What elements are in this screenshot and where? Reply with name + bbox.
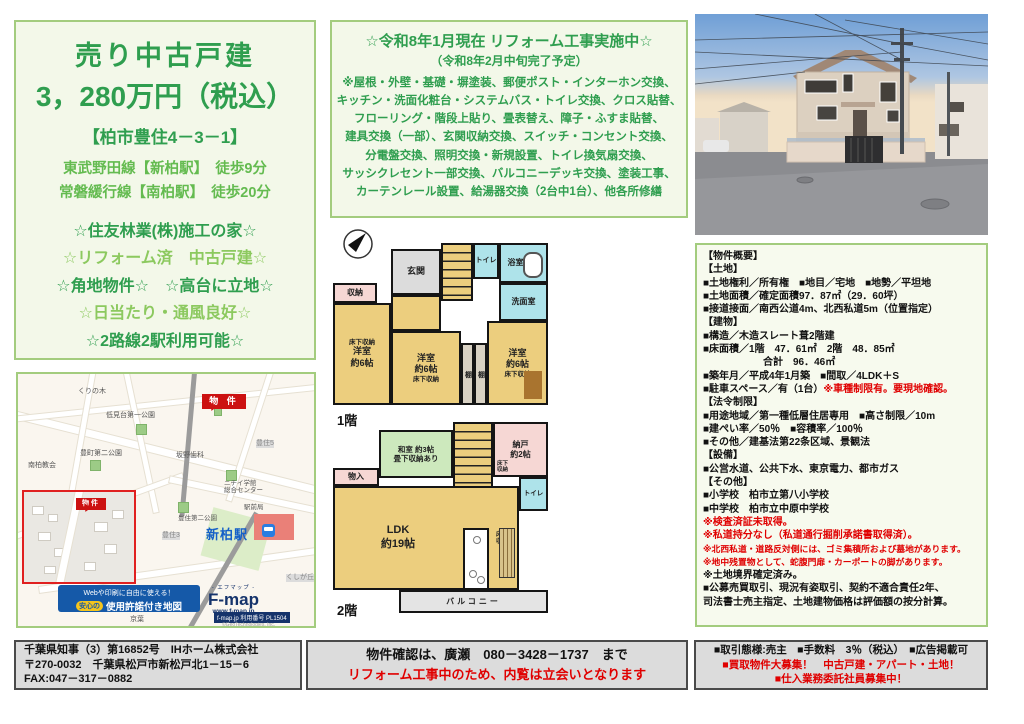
room-label: 玄関 — [407, 266, 425, 277]
map-label-kushigaoka: くしが丘 — [286, 574, 314, 582]
map-label-dental: 坂野歯科 — [176, 452, 204, 460]
license-line: 〒270-0032 千葉県松戸市新松戸北1－15－6 — [24, 658, 300, 673]
property-marker: 物 件 — [202, 394, 246, 409]
access-info: 東武野田線【新柏駅】 徒歩9分常磐緩行線【南柏駅】 徒歩20分 — [16, 158, 314, 206]
terms-line: ■買取物件大募集！ 中古戸建・アパート・土地！ — [696, 658, 986, 673]
detail-line: ※土地境界確定済み。 — [703, 569, 980, 582]
map-label-toyosumi3: 豊住3 — [162, 532, 180, 540]
room-nando: 納戸 約2帖 床下 収納 — [493, 422, 548, 477]
detail-line: ■構造／木造スレート葺2階建 — [703, 330, 980, 343]
banner-badge: 安心の — [76, 601, 103, 611]
map-label-nichii: ニチイ学館 総合センター — [224, 480, 263, 495]
detail-line: ■公営水道、公共下水、東京電力、都市ガス — [703, 463, 980, 476]
detail-line: 【その他】 — [703, 476, 980, 489]
kitchen-counter — [463, 528, 489, 590]
detail-line: 【土地】 — [703, 263, 980, 276]
detail-line: ■駐車スペース／有（1台）※車種制限有。要現地確認。 — [703, 383, 980, 396]
park-icon — [178, 502, 189, 513]
underfloor-storage-label: 床下 収納 — [497, 461, 508, 473]
map-license-banner: Webや印刷に自由に使える！ 安心の 使用許諾付き地図 — [58, 585, 200, 612]
fmap-logo: - エフマップ - F-map www.f-map.jp — [208, 583, 259, 615]
detail-line: ■接道接面／南西公道4m、北西私道5m（位置指定） — [703, 303, 980, 316]
feature-line: ☆リフォーム済 中古戸建☆ — [16, 245, 314, 273]
shelf-label: 棚 — [476, 371, 486, 378]
feature-list: ☆住友林業(株)施工の家☆☆リフォーム済 中古戸建☆☆角地物件☆ ☆高台に立地☆… — [16, 218, 314, 356]
property-photo — [695, 14, 988, 235]
park-icon — [90, 460, 101, 471]
shelf-left: 棚 — [461, 343, 474, 405]
property-marker-label: 物 件 — [209, 396, 239, 406]
renovation-line: フローリング・階段上貼り、畳表替え、障子・ふすま貼替、 — [332, 110, 686, 128]
train-station-icon — [262, 524, 275, 537]
bathtub-icon — [523, 252, 543, 278]
room-label: トイレ — [524, 490, 544, 498]
banner-line1: Webや印刷に自由に使える！ — [58, 585, 200, 598]
map-road — [16, 383, 316, 422]
room-storage-1f: 収納 — [333, 283, 377, 303]
contact-line: リフォーム工事中のため、内覧は立会いとなります — [308, 665, 686, 685]
detail-line: 【法令制限】 — [703, 396, 980, 409]
renovation-line: カーテンレール設置、給湯器交換（2台中1台）、他各所修繕 — [332, 183, 686, 201]
license-lines: 千葉県知事（3）第16852号 IHホーム株式会社〒270-0032 千葉県松戸… — [24, 643, 300, 688]
map-label-park1: 低見台第一公園 — [106, 412, 155, 420]
price: 3，280万円（税込） — [16, 75, 314, 115]
detail-line: 合計 96．46㎡ — [703, 356, 980, 369]
map-label-church: 南柏教会 — [28, 462, 56, 470]
floorplan-1f: 玄関 トイレ 浴室 洗面室 収納 床下収納 洋室 約6帖 洋室 約6帖 床下収納… — [333, 243, 548, 405]
room-label: 和室 約3帖 畳下収納あり — [394, 445, 439, 464]
map-label-keiyo: 京葉 — [130, 616, 144, 624]
fmap-name: F-map — [208, 591, 259, 608]
renovation-line: 分電盤交換、照明交換・新規設置、トイレ換気扇交換、 — [332, 147, 686, 165]
hall-1f — [391, 295, 441, 331]
property-address: 【柏市豊住4－3－1】 — [16, 123, 314, 148]
property-details-list: 【物件概要】【土地】■土地権利／所有権 ■地目／宅地 ■地勢／平坦地■土地面積／… — [703, 250, 980, 609]
access-line: 東武野田線【新柏駅】 徒歩9分 — [16, 158, 314, 182]
shelf-label: 棚 — [463, 371, 473, 378]
map-road — [16, 409, 316, 503]
floorplan-2f: 和室 約3帖 畳下収納あり 納戸 約2帖 床下 収納 物入 トイレ LDK 約1… — [333, 420, 548, 615]
room-label: 浴室 — [508, 258, 524, 268]
cabinet-icon — [524, 371, 542, 399]
terms-lines: ■取引態様:売主 ■手数料 3％（税込） ■広告掲載可■買取物件大募集！ 中古戸… — [696, 643, 986, 687]
room-label: 納戸 約2帖 — [510, 440, 530, 460]
detail-line: ■土地権利／所有権 ■地目／宅地 ■地勢／平坦地 — [703, 277, 980, 290]
room-western-right: 洋室 約6帖 床下収納 — [487, 321, 548, 405]
map-label-park2: 豊町第二公園 — [80, 450, 122, 458]
fmap-copyright: ©GeoTechnologies, Inc. — [222, 622, 275, 628]
room-label: トイレ — [476, 257, 497, 266]
renovation-line: ※屋根・外壁・基礎・塀塗装、郵便ポスト・インターホン交換、 — [332, 74, 686, 92]
room-washitsu: 和室 約3帖 畳下収納あり — [379, 430, 453, 478]
flyer-page: 売り中古戸建 3，280万円（税込） 【柏市豊住4－3－1】 東武野田線【新柏駅… — [0, 0, 1024, 724]
detail-line: 【設備】 — [703, 449, 980, 462]
map-label-station: 新柏駅 — [206, 524, 248, 543]
detail-line: ■建ぺい率／50％ ■容積率／100％ — [703, 423, 980, 436]
detail-line: ■築年月／平成4年1月築 ■間取／4LDK＋S — [703, 370, 980, 383]
park-icon — [136, 424, 147, 435]
detail-line: ■その他／建基法第22条区域、景観法 — [703, 436, 980, 449]
room-label: 洋室 約6帖 — [350, 346, 373, 369]
stairs-2f — [453, 422, 493, 488]
room-monoire: 物入 — [333, 468, 379, 486]
detail-line: ■中学校 柏市立中原中学校 — [703, 503, 980, 516]
feature-line: ☆日当たり・通風良好☆ — [16, 300, 314, 328]
terms-line: ■取引態様:売主 ■手数料 3％（税込） ■広告掲載可 — [696, 643, 986, 658]
renovation-line: 建具交換（一部）、玄関収納交換、スイッチ・コンセント交換、 — [332, 128, 686, 146]
feature-line: ☆2路線2駅利用可能☆ — [16, 328, 314, 356]
feature-line: ☆住友林業(株)施工の家☆ — [16, 218, 314, 246]
renovation-subtitle: （令和8年2月中旬完了予定） — [332, 52, 686, 69]
detail-line: ※地中残置物として、蛇腹門扉・カーポートの脚があります。 — [703, 556, 980, 569]
room-label: 洗面室 — [512, 297, 536, 307]
renovation-panel: ☆令和8年1月現在 リフォーム工事実施中☆ （令和8年2月中旬完了予定） ※屋根… — [330, 20, 688, 218]
room-label: バルコニー — [446, 597, 501, 607]
room-label: 物入 — [348, 472, 364, 482]
floor2-label: 2階 — [337, 600, 357, 619]
room-label: 収納 — [347, 288, 363, 298]
license-box: 千葉県知事（3）第16852号 IHホーム株式会社〒270-0032 千葉県松戸… — [14, 640, 302, 690]
room-toilet-1f: トイレ — [473, 243, 499, 279]
access-line: 常磐緩行線【南柏駅】 徒歩20分 — [16, 182, 314, 206]
detail-line: 【建物】 — [703, 316, 980, 329]
room-label: LDK 約19帖 — [381, 524, 415, 552]
contact-line: 物件確認は、廣瀬 080－3428－1737 まで — [308, 645, 686, 665]
banner-line2: 使用許諾付き地図 — [106, 599, 182, 613]
map-label-park3: 豊住第二公園 — [178, 515, 217, 522]
detail-line: ※検査済証未取得。 — [703, 516, 980, 529]
shelf-right: 棚 — [474, 343, 487, 405]
detail-line: ■土地面積／確定面積97．87㎡（29．60坪） — [703, 290, 980, 303]
room-label: 洋室 約6帖 — [506, 348, 529, 371]
detail-line: ※北西私道・道路反対側には、ゴミ集積所および墓地があります。 — [703, 543, 980, 556]
map-label-kurinoki: くりの木 — [78, 388, 106, 396]
stairs-1f — [441, 243, 473, 301]
room-western-center: 洋室 約6帖 床下収納 — [391, 331, 461, 405]
detail-line: ■公募売買取引、現況有姿取引、契約不適合責任2年、 — [703, 582, 980, 595]
property-marker-inset: 物件 — [76, 498, 106, 510]
room-washroom: 洗面室 — [499, 283, 548, 321]
detail-line: 司法書士売主指定、土地建物価格は評価額の按分計算。 — [703, 596, 980, 609]
property-marker-label: 物件 — [82, 500, 100, 507]
room-bath: 浴室 — [499, 243, 548, 283]
railway-line — [179, 372, 197, 516]
room-label: 洋室 約6帖 — [414, 353, 437, 376]
page-title: 売り中古戸建 — [16, 34, 314, 73]
map-label-toyosumi5: 豊住5 — [256, 440, 274, 448]
map-panel: くりの木 低見台第一公園 豊町第二公園 南柏教会 坂野歯科 豊住5 ニチイ学館 … — [16, 372, 316, 628]
map-inset: 物件 — [22, 490, 136, 584]
map-label-ekimae: 駅前局 — [244, 504, 264, 511]
headline-panel: 売り中古戸建 3，280万円（税込） 【柏市豊住4－3－1】 東武野田線【新柏駅… — [14, 20, 316, 360]
detail-line: ■小学校 柏市立第八小学校 — [703, 489, 980, 502]
feature-line: ☆角地物件☆ ☆高台に立地☆ — [16, 273, 314, 301]
property-details-panel: 【物件概要】【土地】■土地権利／所有権 ■地目／宅地 ■地勢／平坦地■土地面積／… — [695, 243, 988, 627]
detail-line: ※私道持分なし（私道通行掘削承諾書取得済）。 — [703, 529, 980, 542]
room-ldk: LDK 約19帖 床下 収納 — [333, 486, 519, 590]
room-toilet-2f: トイレ — [519, 477, 548, 511]
room-genkan: 玄関 — [391, 249, 441, 295]
underfloor-storage-label: 床下収納 — [413, 376, 439, 383]
detail-line: ■用途地域／第一種低層住居専用 ■高さ制限／10m — [703, 410, 980, 423]
contact-box: 物件確認は、廣瀬 080－3428－1737 までリフォーム工事中のため、内覧は… — [306, 640, 688, 690]
detail-line: 【物件概要】 — [703, 250, 980, 263]
renovation-line: サッシクレセント一部交換、バルコニーデッキ交換、塗装工事、 — [332, 165, 686, 183]
room-western-left: 床下収納 洋室 約6帖 — [333, 303, 391, 405]
ladder-shelf — [499, 528, 515, 578]
contact-lines: 物件確認は、廣瀬 080－3428－1737 までリフォーム工事中のため、内覧は… — [308, 645, 686, 685]
detail-line: ■床面積／1階 47．61㎡ 2階 48．85㎡ — [703, 343, 980, 356]
license-line: 千葉県知事（3）第16852号 IHホーム株式会社 — [24, 643, 300, 658]
renovation-line: キッチン・洗面化粧台・システムバス・トイレ交換、クロス貼替、 — [332, 92, 686, 110]
renovation-list: ※屋根・外壁・基礎・塀塗装、郵便ポスト・インターホン交換、キッチン・洗面化粧台・… — [332, 74, 686, 201]
balcony: バルコニー — [399, 590, 548, 613]
terms-box: ■取引態様:売主 ■手数料 3％（税込） ■広告掲載可■買取物件大募集！ 中古戸… — [694, 640, 988, 690]
terms-line: ■仕入業務委託社員募集中！ — [696, 672, 986, 687]
renovation-title: ☆令和8年1月現在 リフォーム工事実施中☆ — [332, 30, 686, 51]
license-line: FAX:047－317－0882 — [24, 672, 300, 687]
